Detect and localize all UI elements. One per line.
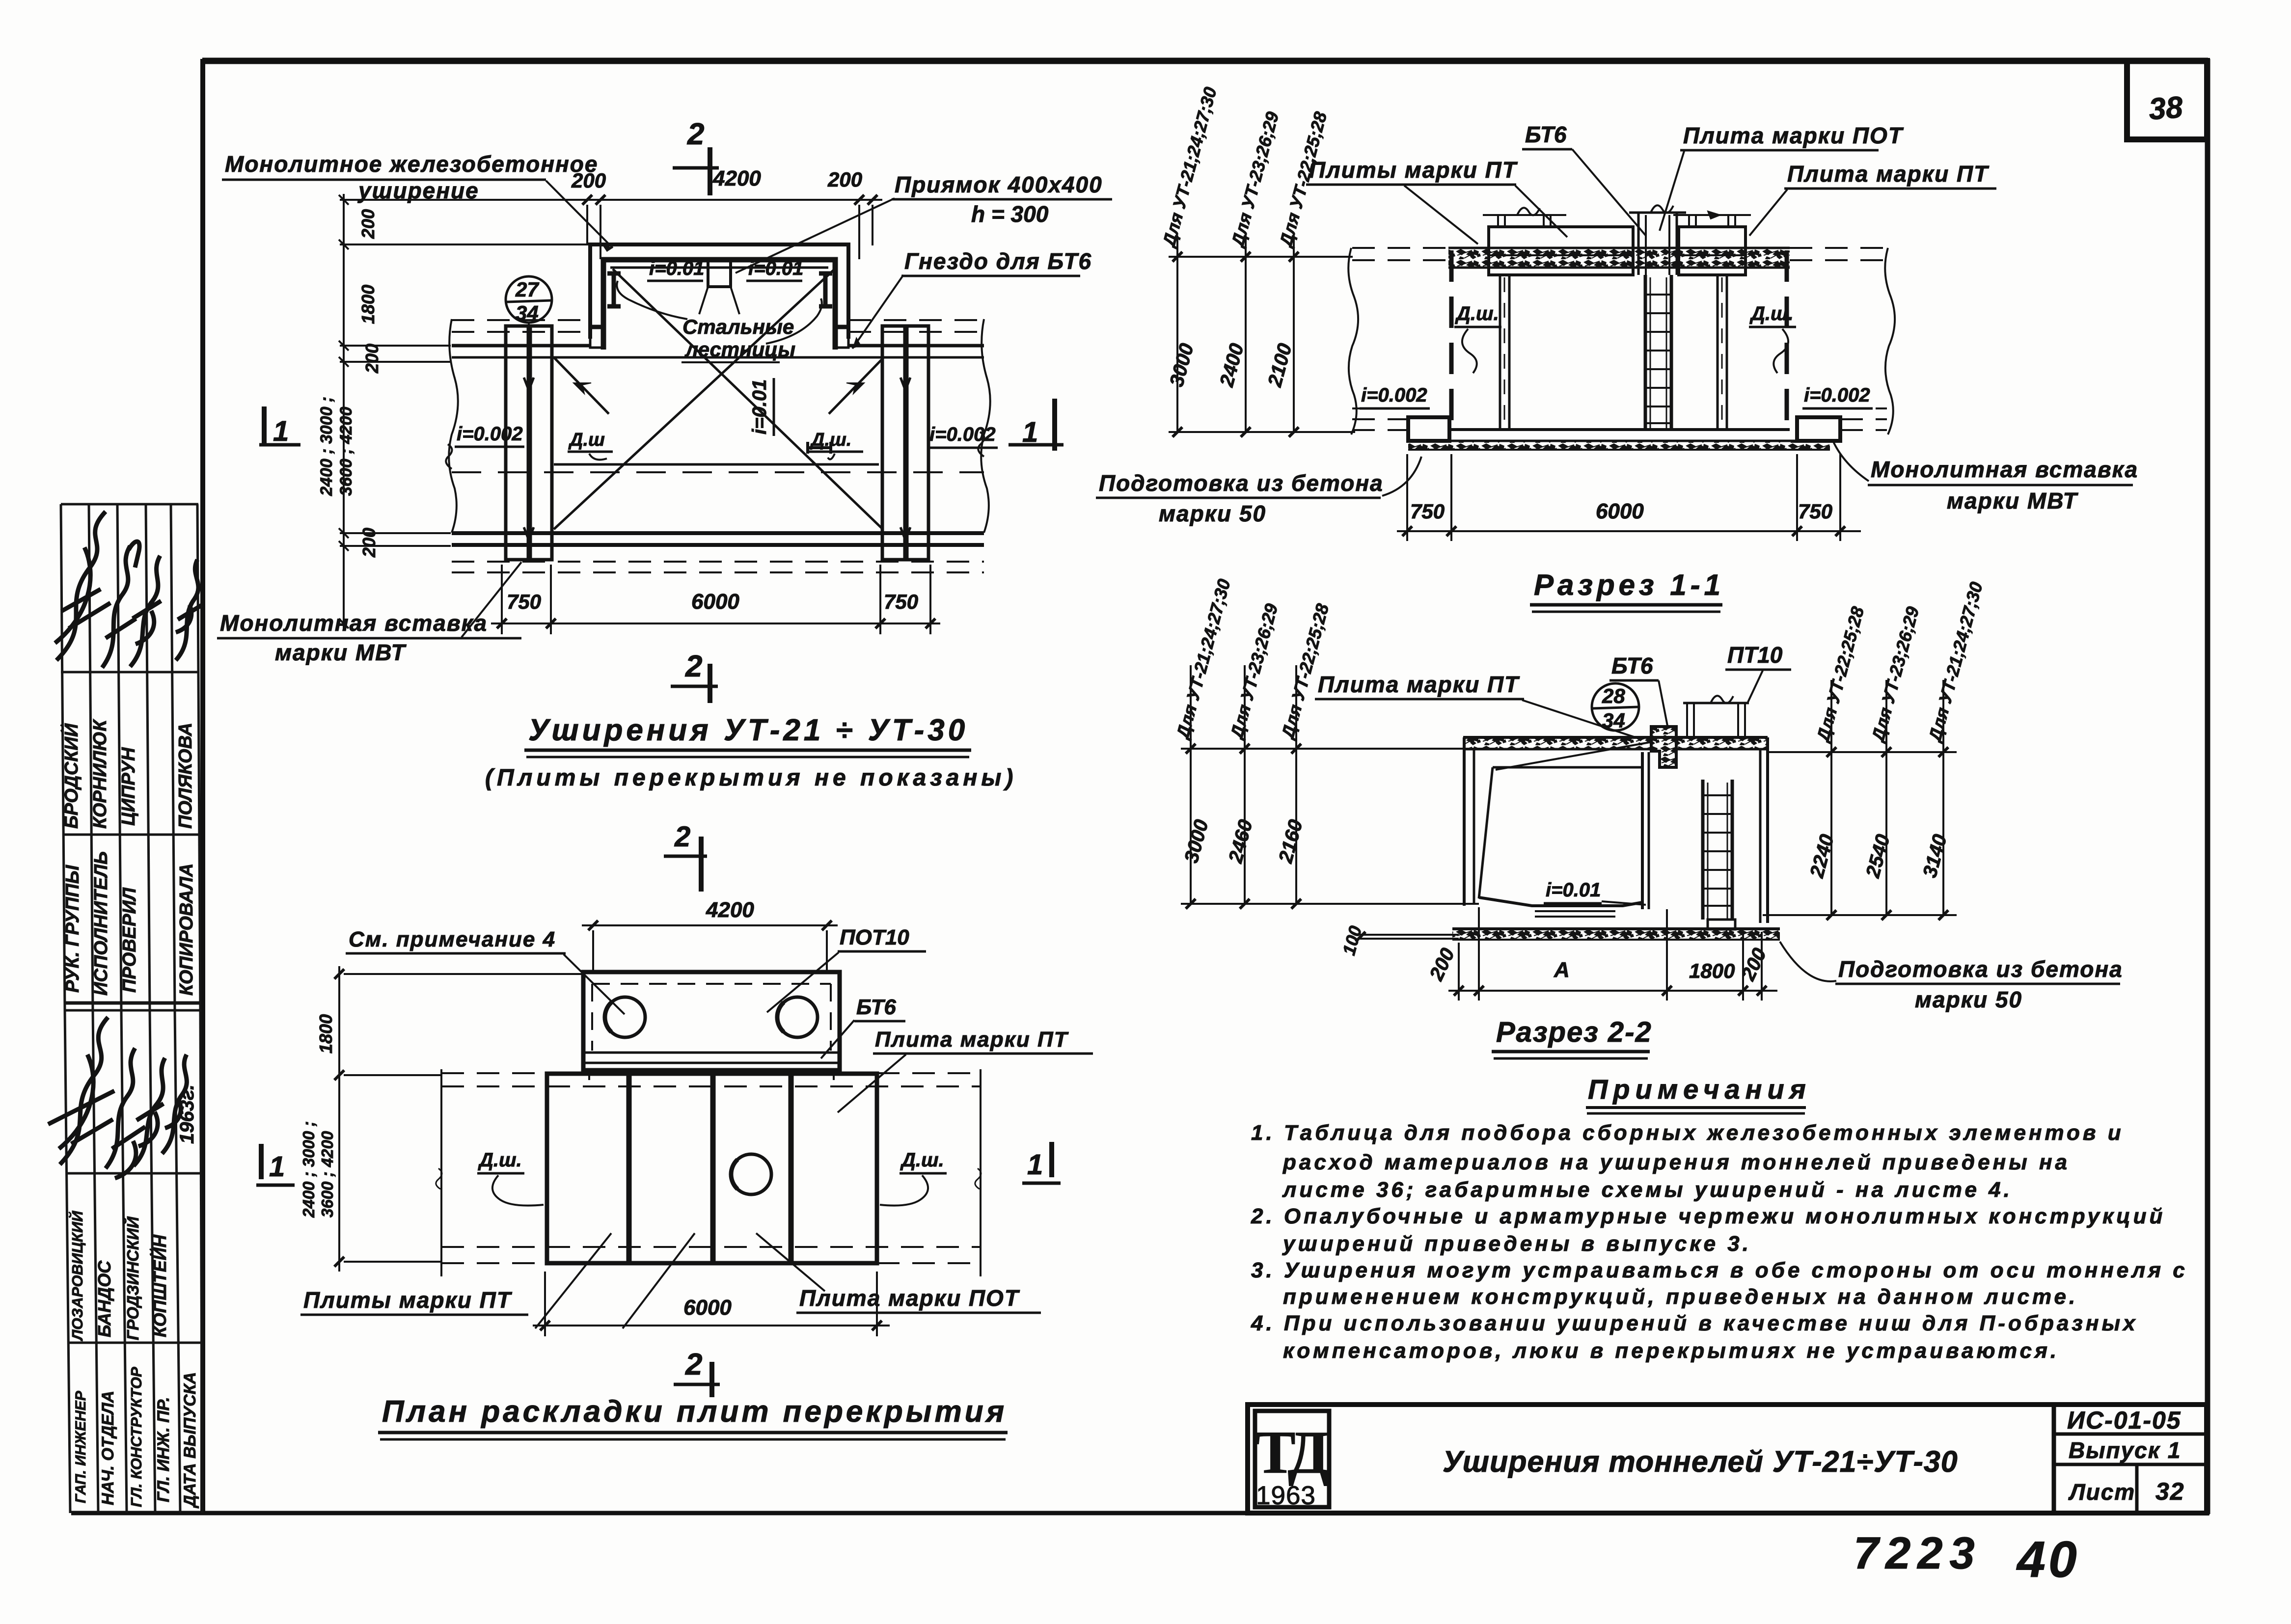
svg-text:Гнездо для БТ6: Гнездо для БТ6 bbox=[904, 248, 1092, 274]
svg-text:2: 2 bbox=[687, 117, 704, 151]
svg-text:2160: 2160 bbox=[1275, 817, 1307, 866]
svg-text:1. Таблица для подбора сборных: 1. Таблица для подбора сборных железобет… bbox=[1251, 1121, 2124, 1145]
svg-text:А: А bbox=[1554, 958, 1570, 982]
svg-text:Разрез 1-1: Разрез 1-1 bbox=[1534, 568, 1724, 601]
svg-text:Для УТ-21;24;27;30: Для УТ-21;24;27;30 bbox=[1172, 577, 1234, 742]
svg-text:Плиты марки ПТ: Плиты марки ПТ bbox=[1309, 157, 1518, 183]
svg-text:Приямок 400х400: Приямок 400х400 bbox=[895, 172, 1103, 197]
svg-text:Плита марки ПОТ: Плита марки ПОТ bbox=[799, 1285, 1020, 1311]
svg-text:1: 1 bbox=[269, 1151, 285, 1183]
svg-text:i=0.01: i=0.01 bbox=[749, 379, 770, 434]
svg-text:3140: 3140 bbox=[1919, 832, 1951, 880]
svg-text:2400: 2400 bbox=[1216, 341, 1248, 389]
svg-text:3000: 3000 bbox=[1166, 341, 1198, 389]
svg-text:применением конструкций, приве: применением конструкций, приведеных на д… bbox=[1283, 1285, 2078, 1309]
svg-text:уширение: уширение bbox=[357, 178, 479, 203]
svg-text:ИСПОЛНИТЕЛЬ: ИСПОЛНИТЕЛЬ bbox=[91, 851, 111, 996]
svg-text:Для УТ-21;24;27;30: Для УТ-21;24;27;30 bbox=[1158, 85, 1221, 250]
svg-text:2: 2 bbox=[685, 650, 702, 683]
svg-text:2540: 2540 bbox=[1862, 832, 1894, 880]
svg-text:(Плиты перекрытия не показа: (Плиты перекрытия не показаны) bbox=[485, 765, 1017, 791]
svg-text:Подготовка из бетона: Подготовка из бетона bbox=[1838, 956, 2123, 982]
svg-text:Плита марки ПТ: Плита марки ПТ bbox=[1787, 161, 1990, 187]
svg-text:Д.ш.: Д.ш. bbox=[1455, 303, 1499, 325]
svg-text:200: 200 bbox=[827, 168, 862, 191]
svg-text:НАЧ. ОТДЕЛА: НАЧ. ОТДЕЛА bbox=[99, 1391, 117, 1505]
svg-text:750: 750 bbox=[507, 590, 541, 613]
svg-text:Для УТ-22;25;28: Для УТ-22;25;28 bbox=[1812, 604, 1868, 745]
svg-text:2400 ; 3000 ;: 2400 ; 3000 ; bbox=[300, 1121, 318, 1218]
svg-text:40: 40 bbox=[2016, 1531, 2080, 1588]
svg-text:2460: 2460 bbox=[1225, 817, 1257, 866]
svg-text:ПОТ10: ПОТ10 bbox=[840, 925, 909, 949]
svg-text:Монолитная вставка: Монолитная вставка bbox=[1871, 457, 2138, 482]
svg-text:Стальные: Стальные bbox=[682, 315, 794, 338]
svg-text:i=0.002: i=0.002 bbox=[1804, 384, 1870, 406]
svg-text:Для УТ-23;26;29: Для УТ-23;26;29 bbox=[1867, 604, 1923, 745]
svg-text:Д.ш.: Д.ш. bbox=[1749, 303, 1794, 325]
svg-text:БТ6: БТ6 bbox=[856, 995, 896, 1019]
svg-text:Плита марки ПТ: Плита марки ПТ bbox=[1318, 672, 1520, 697]
svg-text:6000: 6000 bbox=[1596, 499, 1644, 523]
svg-text:2. Опалубочные и арматурные че: 2. Опалубочные и арматурные чертежи моно… bbox=[1251, 1204, 2165, 1228]
svg-text:200: 200 bbox=[358, 209, 378, 239]
svg-text:марки 50: марки 50 bbox=[1159, 501, 1266, 526]
svg-text:7223: 7223 bbox=[1854, 1528, 1982, 1578]
svg-text:Уширения УТ-21 ÷ УТ-30: Уширения УТ-21 ÷ УТ-30 bbox=[528, 713, 968, 747]
svg-text:38: 38 bbox=[2148, 90, 2184, 127]
svg-text:Плиты марки ПТ: Плиты марки ПТ bbox=[303, 1287, 513, 1313]
svg-text:750: 750 bbox=[884, 590, 918, 613]
svg-text:компенсаторов, люки в перекрыт: компенсаторов, люки в перекрытиях не уст… bbox=[1283, 1339, 2059, 1363]
svg-text:КОПШТЕЙН: КОПШТЕЙН bbox=[149, 1234, 170, 1337]
svg-text:2: 2 bbox=[685, 1348, 702, 1381]
svg-text:Монолитное железобетонное: Монолитное железобетонное bbox=[225, 151, 598, 177]
svg-text:уширений приведены в выпуске 3: уширений приведены в выпуске 3. bbox=[1282, 1232, 1751, 1256]
svg-text:Лист: Лист bbox=[2068, 1479, 2135, 1505]
svg-text:i=0.002: i=0.002 bbox=[457, 423, 523, 445]
svg-text:ЛОЗАРОВИЦКИЙ: ЛОЗАРОВИЦКИЙ bbox=[68, 1211, 86, 1341]
svg-text:марки МВТ: марки МВТ bbox=[275, 640, 407, 665]
svg-text:ПРОВЕРИЛ: ПРОВЕРИЛ bbox=[119, 887, 140, 993]
svg-text:2: 2 bbox=[674, 821, 690, 853]
svg-text:27: 27 bbox=[515, 278, 539, 301]
svg-text:1: 1 bbox=[273, 415, 289, 447]
svg-text:ЦИПРУН: ЦИПРУН bbox=[118, 747, 139, 826]
svg-text:КОРНИЛЮК: КОРНИЛЮК bbox=[90, 719, 110, 829]
svg-text:750: 750 bbox=[1798, 500, 1832, 523]
svg-text:Примечания: Примечания bbox=[1588, 1074, 1811, 1105]
svg-text:расход материалов на уширения: расход материалов на уширения тоннелей п… bbox=[1282, 1150, 2070, 1174]
svg-text:200: 200 bbox=[1425, 945, 1459, 984]
svg-text:1800: 1800 bbox=[1689, 959, 1735, 982]
svg-text:3000: 3000 bbox=[1180, 817, 1213, 865]
svg-text:Монолитная вставка: Монолитная вставка bbox=[220, 610, 488, 636]
svg-text:ПОЛЯКОВА: ПОЛЯКОВА bbox=[175, 723, 196, 829]
svg-text:Д.ш.: Д.ш. bbox=[478, 1149, 522, 1171]
svg-text:1: 1 bbox=[1027, 1149, 1043, 1181]
svg-text:марки 50: марки 50 bbox=[1915, 987, 2022, 1012]
svg-text:Плита марки ПТ: Плита марки ПТ bbox=[875, 1028, 1069, 1052]
svg-text:i=0.002: i=0.002 bbox=[929, 424, 996, 445]
svg-text:Выпуск 1: Выпуск 1 bbox=[2069, 1437, 2181, 1463]
svg-text:Д.ш: Д.ш bbox=[568, 430, 605, 450]
svg-text:6000: 6000 bbox=[691, 590, 739, 614]
svg-text:i=0.01: i=0.01 bbox=[748, 258, 803, 279]
svg-text:План раскладки плит перекры: План раскладки плит перекрытия bbox=[382, 1395, 1007, 1429]
svg-text:ТД: ТД bbox=[1255, 1419, 1329, 1486]
svg-text:3600 ; 4200: 3600 ; 4200 bbox=[337, 406, 355, 496]
svg-text:ГЛ. КОНСТРУКТОР: ГЛ. КОНСТРУКТОР bbox=[128, 1367, 145, 1507]
svg-text:i=0.01: i=0.01 bbox=[649, 258, 704, 279]
svg-text:1963: 1963 bbox=[1256, 1481, 1316, 1510]
svg-text:БТ6: БТ6 bbox=[1611, 653, 1653, 678]
svg-text:Подготовка из бетона: Подготовка из бетона bbox=[1099, 470, 1384, 496]
svg-text:200: 200 bbox=[362, 344, 382, 374]
svg-text:ГРОДЗИНСКИЙ: ГРОДЗИНСКИЙ bbox=[123, 1216, 142, 1340]
svg-text:БАНДОС: БАНДОС bbox=[94, 1260, 114, 1337]
svg-text:200: 200 bbox=[359, 528, 379, 558]
svg-text:ДАТА ВЫПУСКА: ДАТА ВЫПУСКА bbox=[181, 1372, 199, 1509]
svg-text:100: 100 bbox=[1338, 923, 1365, 957]
svg-text:1963г.: 1963г. bbox=[176, 1084, 198, 1144]
svg-text:Для УТ-23;26;29: Для УТ-23;26;29 bbox=[1227, 109, 1282, 250]
svg-text:4200: 4200 bbox=[712, 166, 761, 190]
svg-text:i=0.01: i=0.01 bbox=[1546, 879, 1601, 901]
svg-text:3. Уширения могут устраиваться: 3. Уширения могут устраиваться в обе сто… bbox=[1251, 1258, 2188, 1282]
svg-text:ИС-01-05: ИС-01-05 bbox=[2067, 1407, 2182, 1434]
svg-text:листе 36; габаритные схемы уши: листе 36; габаритные схемы уширений - на… bbox=[1282, 1178, 2013, 1202]
svg-text:2400 ; 3000 ;: 2400 ; 3000 ; bbox=[317, 397, 336, 496]
svg-text:34: 34 bbox=[1602, 709, 1625, 732]
svg-text:Д.ш.: Д.ш. bbox=[900, 1149, 944, 1171]
svg-text:1800: 1800 bbox=[358, 285, 378, 324]
svg-text:ПТ10: ПТ10 bbox=[1727, 642, 1783, 668]
svg-text:ГЛ. ИНЖ. ПР.: ГЛ. ИНЖ. ПР. bbox=[154, 1397, 173, 1502]
svg-text:6000: 6000 bbox=[683, 1296, 732, 1320]
svg-text:34: 34 bbox=[516, 301, 539, 325]
svg-text:2240: 2240 bbox=[1806, 832, 1838, 880]
svg-text:i=0.002: i=0.002 bbox=[1361, 384, 1427, 406]
svg-text:КОПИРОВАЛА: КОПИРОВАЛА bbox=[176, 864, 197, 996]
svg-text:См. примечание 4: См. примечание 4 bbox=[349, 927, 556, 951]
svg-text:марки МВТ: марки МВТ bbox=[1947, 488, 2079, 514]
svg-text:БТ6: БТ6 bbox=[1525, 122, 1567, 147]
svg-text:Для УТ-21;24;27;30: Для УТ-21;24;27;30 bbox=[1924, 580, 1987, 745]
svg-text:БРОДСКИЙ: БРОДСКИЙ bbox=[60, 723, 82, 829]
svg-text:4. При использовании уширений: 4. При использовании уширений в качестве… bbox=[1251, 1311, 2138, 1335]
svg-text:1800: 1800 bbox=[316, 1014, 336, 1054]
svg-text:750: 750 bbox=[1410, 500, 1445, 523]
svg-text:4200: 4200 bbox=[706, 898, 754, 922]
svg-text:Разрез 2-2: Разрез 2-2 bbox=[1496, 1016, 1652, 1048]
svg-text:Для УТ-23;26;29: Для УТ-23;26;29 bbox=[1226, 601, 1282, 742]
svg-text:3600 ; 4200: 3600 ; 4200 bbox=[318, 1131, 336, 1218]
svg-text:2100: 2100 bbox=[1264, 341, 1296, 389]
svg-text:Уширения тоннелей УТ-21÷УТ-3: Уширения тоннелей УТ-21÷УТ-30 bbox=[1443, 1445, 1958, 1478]
svg-text:Плита марки ПОТ: Плита марки ПОТ bbox=[1683, 123, 1904, 148]
svg-text:ГАП. ИНЖЕНЕР: ГАП. ИНЖЕНЕР bbox=[73, 1390, 89, 1503]
svg-text:h = 300: h = 300 bbox=[971, 201, 1049, 227]
svg-text:РУК. ГРУППЫ: РУК. ГРУППЫ bbox=[62, 865, 83, 993]
svg-text:28: 28 bbox=[1602, 684, 1625, 707]
svg-text:32: 32 bbox=[2155, 1478, 2185, 1505]
